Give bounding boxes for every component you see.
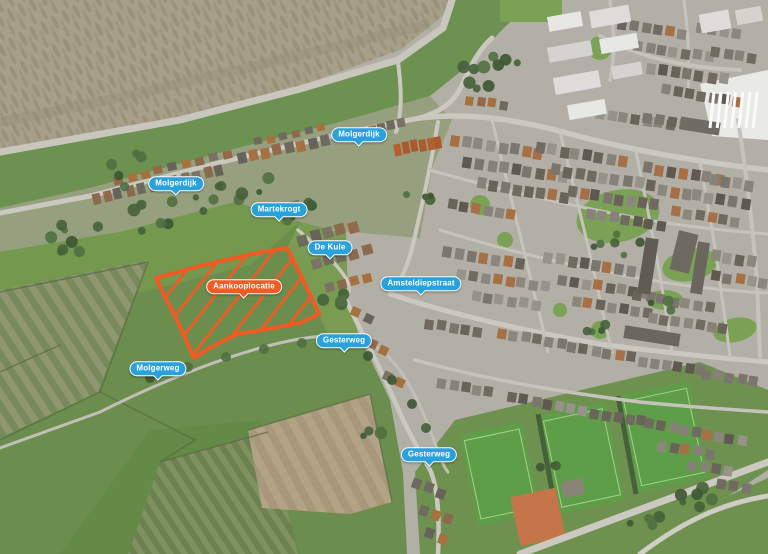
- map-pin-aankooplocatie[interactable]: Aankooplocatie: [206, 279, 282, 297]
- map-pin-molgerdijk-west[interactable]: Molgerdijk: [148, 176, 204, 194]
- map-pin-amsteldiepstraat[interactable]: Amsteldiepstraat: [380, 276, 461, 294]
- map-pin-molgerdijk-north[interactable]: Molgerdijk: [331, 127, 387, 145]
- aerial-map[interactable]: MolgerdijkMolgerdijkMartekrogtDe KuleAan…: [0, 0, 768, 554]
- map-pins-layer: MolgerdijkMolgerdijkMartekrogtDe KuleAan…: [0, 0, 768, 554]
- map-pin-gesterweg-north[interactable]: Gesterweg: [316, 333, 372, 351]
- map-pin-martekrogt[interactable]: Martekrogt: [251, 202, 308, 220]
- map-pin-molgerweg[interactable]: Molgerweg: [129, 361, 186, 379]
- map-pin-gesterweg-south[interactable]: Gesterweg: [401, 447, 457, 465]
- map-pin-de-kule[interactable]: De Kule: [308, 240, 353, 258]
